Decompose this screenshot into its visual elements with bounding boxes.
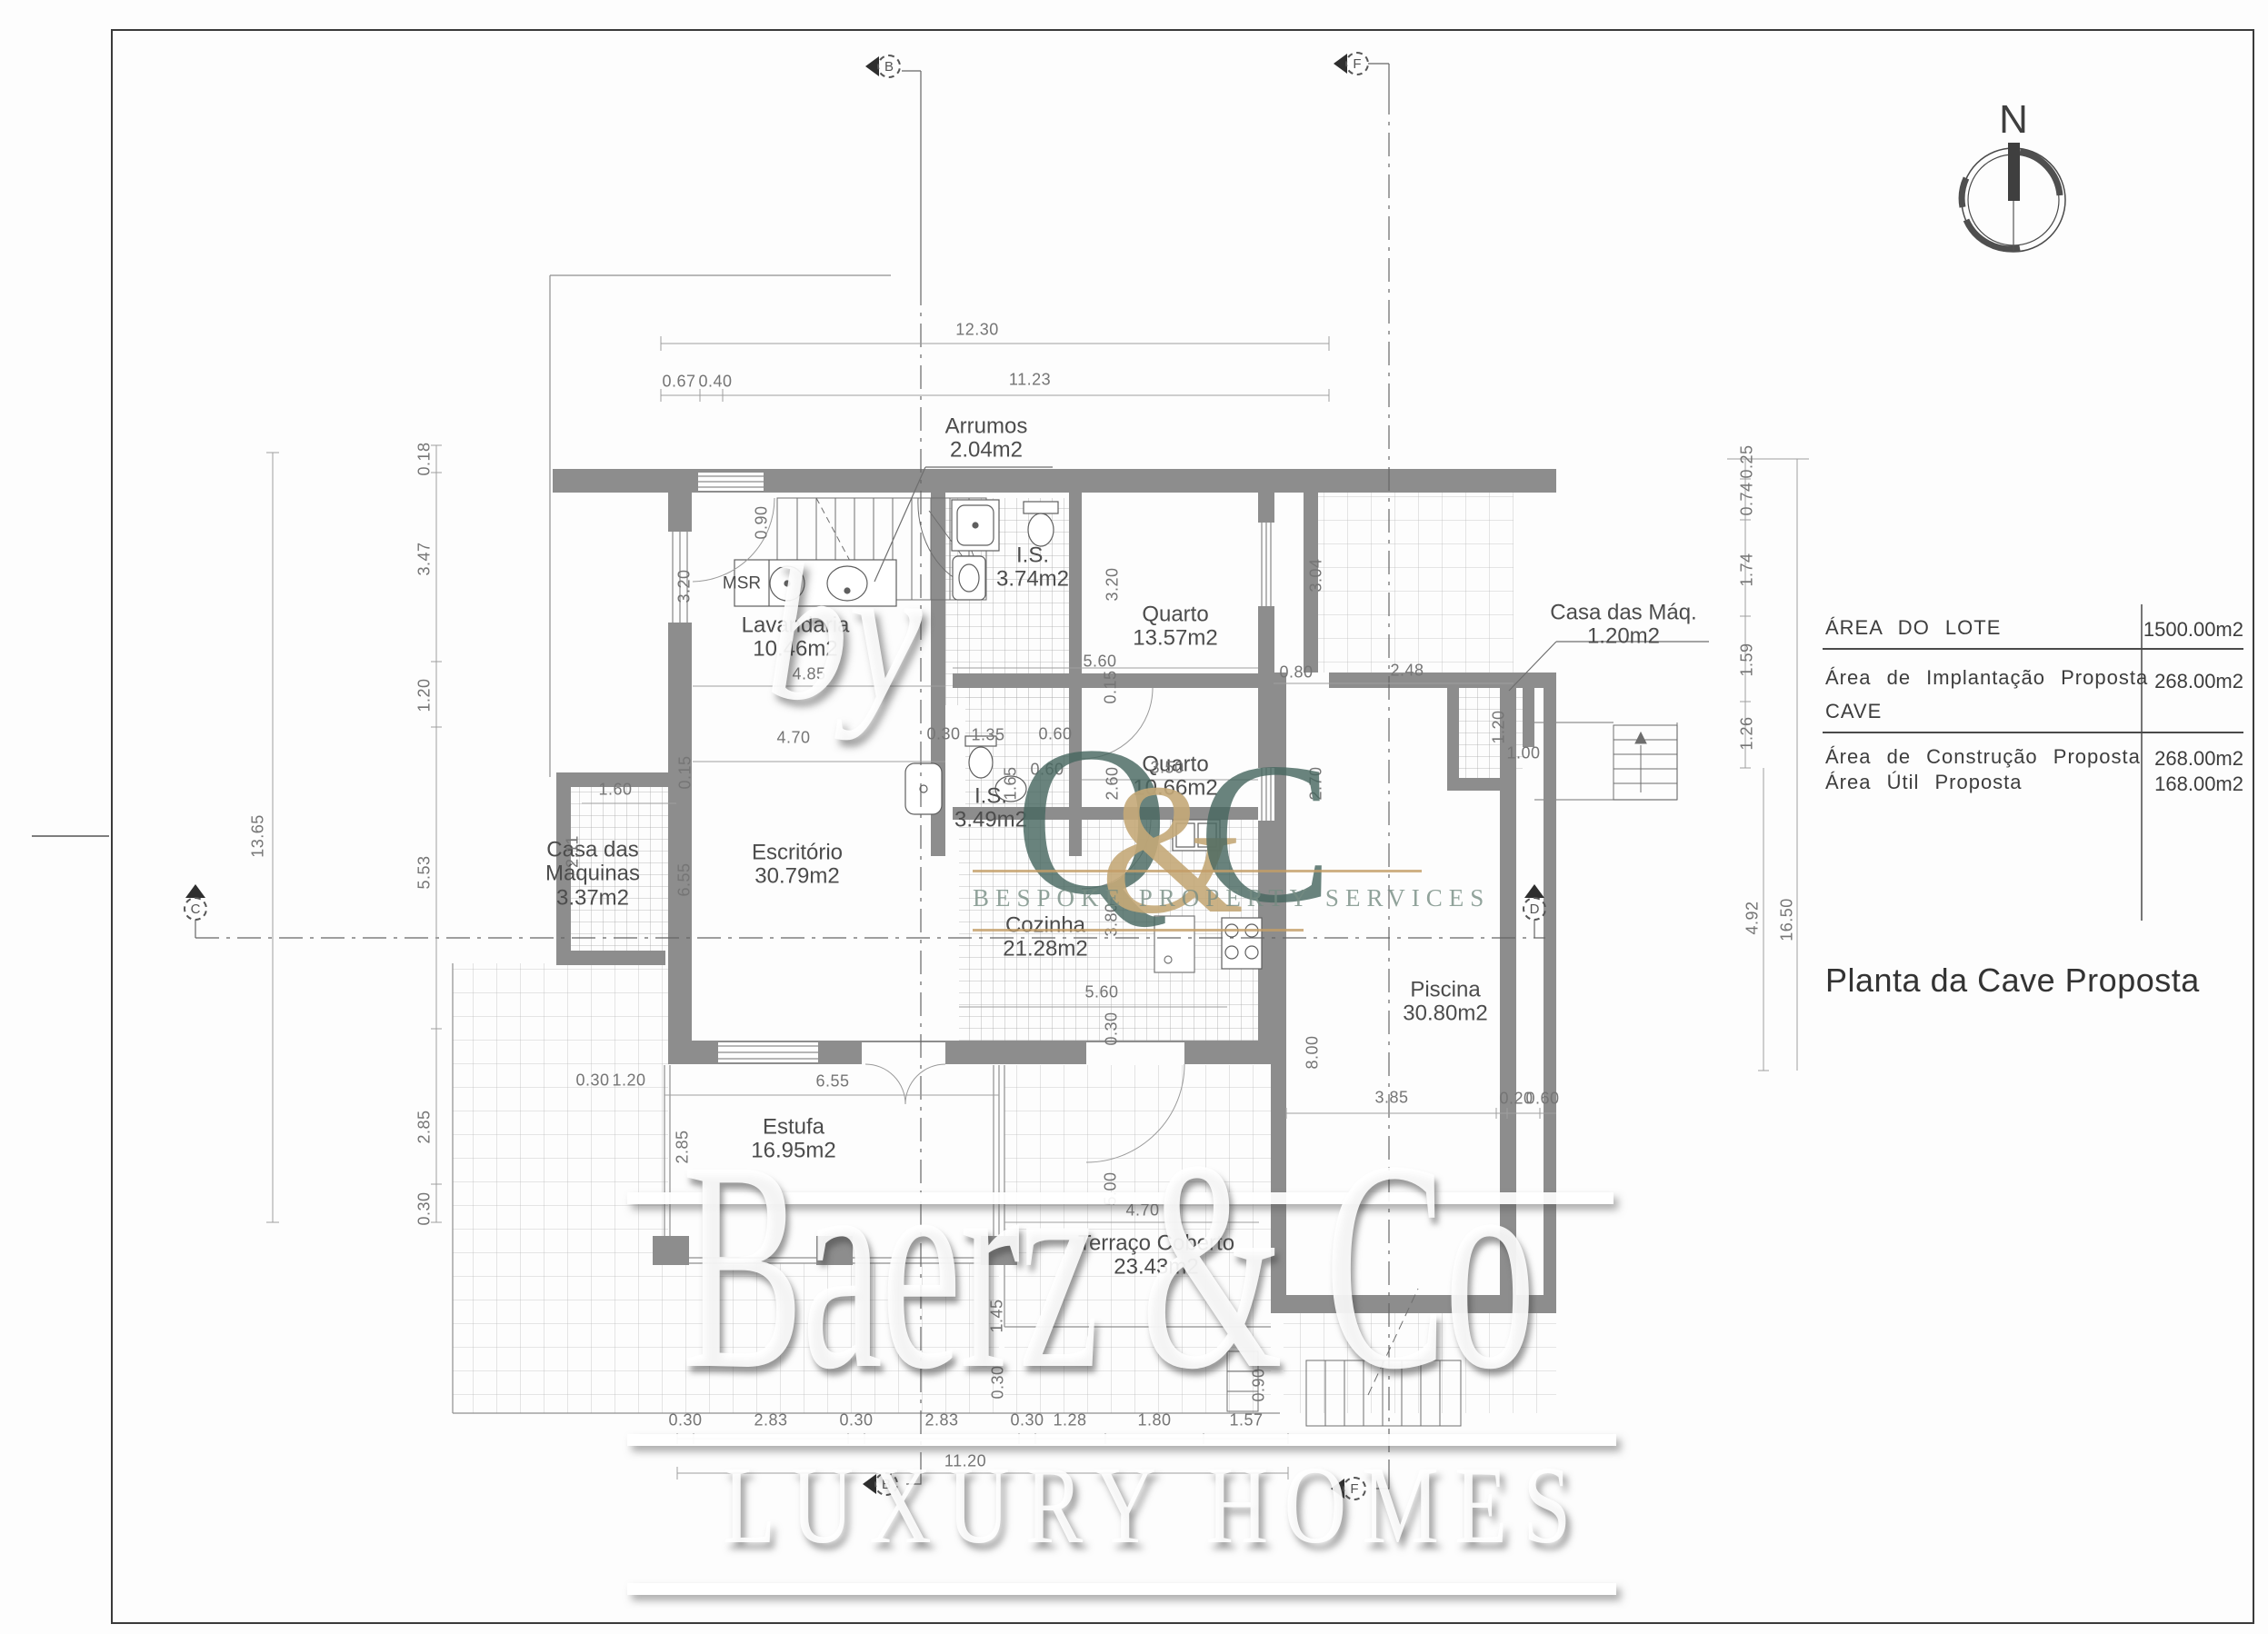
table-row-value: 268.00m2: [2142, 670, 2243, 693]
floor-plan-sheet: Lavandaria10.46m2I.S.3.74m2Quarto13.57m2…: [0, 0, 2268, 1634]
table-row-label: ÁREA DO LOTE: [1825, 616, 2001, 640]
section-marker-f: F: [1337, 44, 1377, 84]
qc-rule: [973, 870, 1422, 872]
qc-logo-tagline: BESPOKE PROPERTY SERVICES: [973, 886, 1427, 911]
section-marker-b: B: [869, 46, 909, 86]
table-row-label: Área Útil Proposta: [1825, 771, 2023, 794]
section-marker-d: D: [1514, 889, 1554, 929]
watermark-tagline: LUXURY HOMES: [723, 1450, 1587, 1561]
table-row-label: CAVE: [1825, 700, 1882, 723]
table-row-label: Área de Implantação Proposta: [1825, 666, 2148, 690]
qc-rule: [973, 929, 1304, 932]
watermark-rule: [627, 1583, 1616, 1595]
table-row-label: Área de Construção Proposta: [1825, 745, 2141, 769]
watermark-brand: Baerz & Co: [682, 1116, 1534, 1416]
section-marker-c: C: [175, 889, 215, 929]
table-row-value: 268.00m2: [2142, 747, 2243, 771]
drawing-title: Planta da Cave Proposta: [1825, 961, 2200, 1000]
watermark-by: by: [765, 534, 922, 730]
north-label: N: [1999, 97, 2028, 143]
table-row-value: 1500.00m2: [2142, 618, 2243, 642]
table-row-value: 168.00m2: [2142, 772, 2243, 796]
